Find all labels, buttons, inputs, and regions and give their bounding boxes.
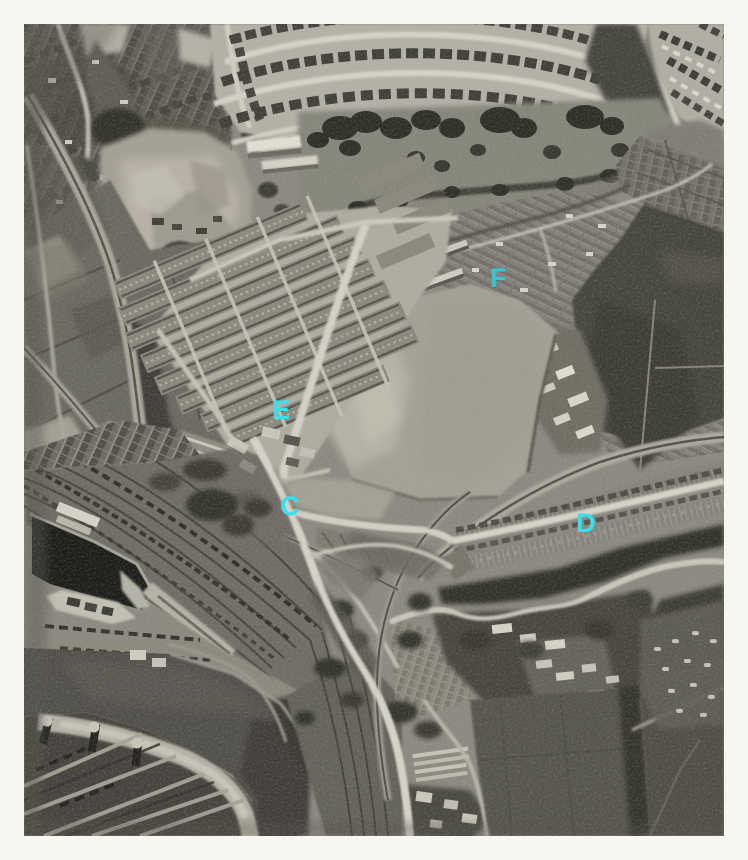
svg-text:D: D <box>576 508 596 538</box>
svg-text:F: F <box>490 263 507 293</box>
svg-text:C: C <box>280 491 300 521</box>
svg-text:E: E <box>272 395 290 425</box>
